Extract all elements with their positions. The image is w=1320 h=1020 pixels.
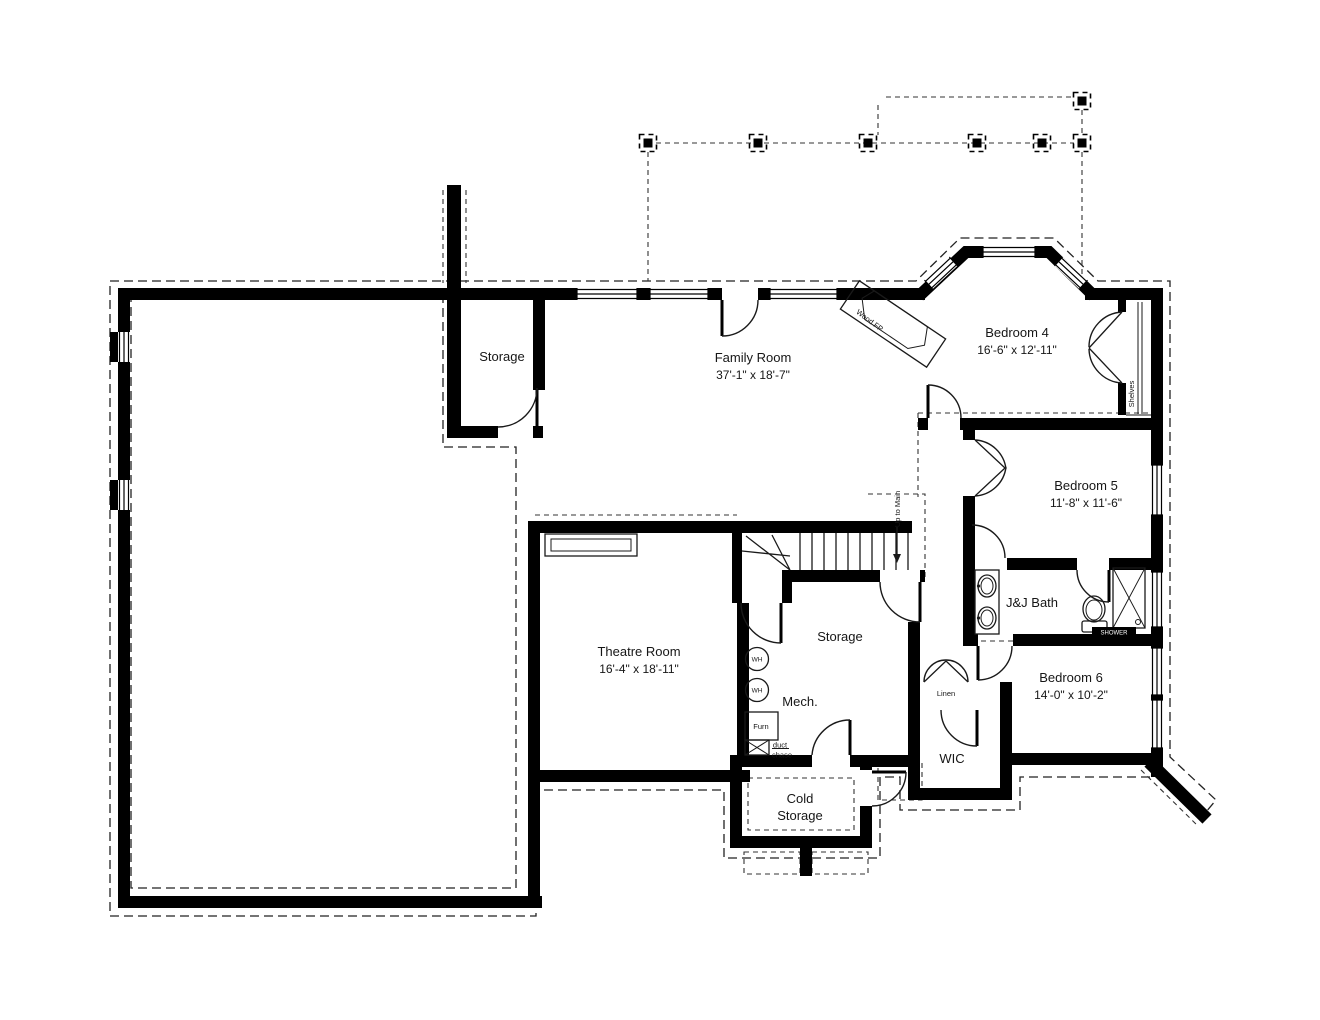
annotation-up-to-main: Up to Main — [893, 491, 902, 527]
doors — [498, 300, 1122, 806]
room-label-bedroom-6: Bedroom 6 — [1039, 670, 1103, 685]
room-dims-bedroom-4: 16'-6" x 12'-11" — [977, 343, 1057, 357]
annotation-furnace: Furn — [753, 722, 768, 731]
toilet — [1082, 596, 1107, 632]
door-bath-inner — [1077, 570, 1109, 602]
room-label-linen: Linen — [937, 689, 955, 698]
floor-plan-page: Storage Family Room 37'-1" x 18'-7" Bedr… — [0, 0, 1320, 1020]
room-label-wic: WIC — [939, 751, 964, 766]
door-bedroom-5-bath — [972, 525, 1005, 558]
deck-post — [750, 135, 767, 152]
room-label-bedroom-5: Bedroom 5 — [1054, 478, 1118, 493]
room-label-storage-middle: Storage — [817, 629, 863, 644]
window — [110, 332, 130, 362]
room-dims-bedroom-5: 11'-8" x 11'-6" — [1050, 496, 1122, 510]
floor-plan-svg: Storage Family Room 37'-1" x 18'-7" Bedr… — [0, 0, 1320, 1020]
window-bay-right — [1054, 257, 1087, 289]
door-mech — [812, 720, 850, 755]
room-label-theatre: Theatre Room — [597, 644, 680, 659]
window — [1151, 700, 1163, 748]
door-linen-double — [924, 660, 968, 682]
staircase — [742, 527, 908, 570]
room-label-family-room: Family Room — [715, 350, 792, 365]
window — [770, 288, 837, 300]
window-bay-top — [983, 246, 1035, 258]
room-dims-family-room: 37'-1" x 18'-7" — [716, 368, 790, 382]
door-bedroom-4-closet — [1089, 312, 1122, 383]
room-label-bedroom-4: Bedroom 4 — [985, 325, 1049, 340]
room-dims-theatre: 16'-4" x 18'-11" — [599, 662, 679, 676]
deck-post — [1074, 135, 1091, 152]
door-bedroom-6-bath — [978, 646, 1012, 680]
vanity — [975, 570, 999, 634]
door-family-room-exterior — [722, 300, 758, 336]
door-storage-upper — [498, 388, 537, 427]
window — [1151, 465, 1163, 515]
door-bedroom-5-double — [975, 440, 1006, 496]
annotation-chase: chase — [772, 751, 792, 760]
media-niche — [545, 534, 637, 556]
annotation-duct: duct — [773, 741, 788, 750]
annotation-shower: SHOWER — [1101, 631, 1129, 637]
deck-post — [1074, 93, 1091, 110]
room-label-jj-bath: J&J Bath — [1006, 595, 1058, 610]
window — [577, 288, 637, 300]
interior-walls — [447, 288, 1151, 876]
door-storage-middle — [880, 582, 920, 622]
annotation-water-heater-2: WH — [752, 688, 763, 695]
window-bay-left — [924, 257, 957, 289]
window — [110, 480, 130, 510]
window — [1151, 572, 1163, 627]
stairs-direction-arrow — [893, 554, 901, 563]
door-wic — [941, 710, 977, 746]
annotation-shelves: Shelves — [1127, 380, 1136, 407]
room-label-cold-storage-1: Cold — [787, 791, 814, 806]
room-label-cold-storage-2: Storage — [777, 808, 823, 823]
room-label-mech: Mech. — [782, 694, 817, 709]
deck-post — [640, 135, 657, 152]
window — [1151, 648, 1163, 695]
room-label-storage-upper: Storage — [479, 349, 525, 364]
window — [650, 288, 708, 300]
bath-fixtures — [975, 568, 1145, 637]
annotation-water-heater-1: WH — [752, 657, 763, 664]
room-dims-bedroom-6: 14'-0" x 10'-2" — [1034, 688, 1108, 702]
